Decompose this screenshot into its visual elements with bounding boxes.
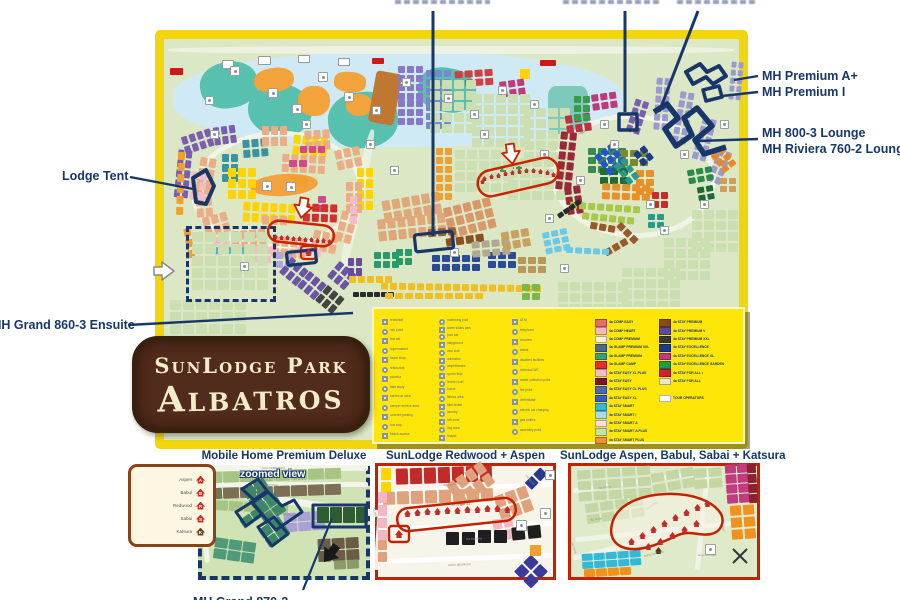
facility-icon: [292, 104, 302, 114]
pitch: [557, 161, 565, 170]
legend-facility-icon: [439, 373, 445, 379]
pitch: [594, 282, 604, 291]
legend-facility-item: telephone: [512, 329, 534, 335]
pitch: [462, 202, 472, 213]
legend-facility-text: playground: [447, 342, 463, 346]
pitch: [731, 61, 737, 67]
zoomed-view-label: zoomed view: [240, 468, 305, 480]
pitch-cluster: [300, 146, 327, 155]
pitch: [343, 507, 355, 523]
pitch: [309, 146, 316, 153]
pitch: [356, 507, 368, 523]
legend-swatch-text: 4a STAY SMART i: [609, 413, 636, 418]
pitch: [270, 203, 277, 212]
pitch: [229, 125, 236, 134]
pitch: [574, 114, 581, 121]
pitch: [309, 165, 316, 173]
legend-facility-icon: [382, 405, 388, 411]
pitch: [707, 128, 715, 136]
pitch: [558, 151, 566, 160]
pitch-cluster: [430, 80, 478, 135]
pitch: [619, 238, 629, 248]
pitch: [676, 271, 686, 280]
pitch: [622, 193, 630, 200]
legend-facility-item: camper service area: [382, 405, 419, 411]
map-shape: [258, 56, 271, 65]
pitch: [357, 168, 364, 177]
lodge-type-key: AspenABabulBRedwoodRSabaiSKatsuraK: [128, 464, 216, 547]
pitch: [222, 312, 233, 322]
legend-facility-item: take away: [382, 386, 404, 392]
pitch: [322, 129, 330, 138]
legend-swatch-text: 4a COMP PREMIUM: [609, 337, 640, 342]
pitch: [664, 87, 670, 94]
legend-swatch: [659, 369, 671, 377]
pitch: [566, 162, 574, 171]
pitch: [356, 258, 362, 266]
pitch: [731, 69, 737, 75]
pitch: [608, 567, 619, 576]
legend-accommodation-item: 4a STAY EXCELLENCE: [659, 344, 709, 352]
pitch: [271, 216, 278, 225]
legend-facility-text: bus stop: [390, 424, 402, 428]
pitch: [708, 467, 722, 477]
pitch: [454, 71, 462, 79]
pitch: [198, 192, 206, 201]
pitch: [397, 217, 406, 228]
legend-accommodation-item: 4a STAY FOR ALL: [659, 378, 701, 386]
pitch: [196, 324, 207, 334]
pitch: [629, 496, 643, 507]
pitch: [455, 236, 464, 245]
pitch: [508, 138, 518, 147]
pitch: [508, 105, 518, 114]
pitch: [317, 538, 331, 550]
pitch: [318, 146, 325, 153]
pitch: [366, 190, 373, 199]
pitch: [411, 491, 423, 504]
legend-facility-item: toilets: [512, 349, 528, 355]
legend-facility-item: disabled facilities: [512, 359, 544, 365]
legend-accommodation-item: 4a STAY EASY XL: [595, 395, 637, 403]
pitch: [222, 324, 233, 334]
pitch: [545, 247, 553, 254]
legend-facility-item: info point: [382, 329, 403, 335]
pitch: [657, 214, 664, 220]
pitch: [407, 109, 414, 116]
pitch: [426, 70, 433, 77]
pitch: [625, 124, 633, 133]
legend-accommodation-item: 4a GLAMP PREMIUM XXL: [595, 344, 649, 352]
pitch: [600, 500, 614, 511]
pitch: [522, 238, 531, 247]
pitch: [620, 567, 631, 576]
pitch: [276, 252, 283, 259]
pitch: [704, 232, 714, 241]
legend-facility-text: waste collection point: [520, 379, 550, 383]
pitch: [464, 70, 472, 78]
map-shape: [170, 68, 183, 75]
pitch: [675, 118, 682, 126]
pitch: [716, 221, 726, 230]
pitch: [687, 92, 694, 100]
pitch: [697, 176, 705, 183]
pitch: [408, 228, 417, 239]
pitch: [631, 107, 639, 116]
pitch: [725, 464, 737, 474]
pitch: [471, 284, 478, 291]
pitch: [435, 70, 442, 77]
pitch: [398, 118, 405, 125]
pitch: [455, 215, 465, 226]
pitch: [696, 168, 704, 175]
pitch: [336, 160, 345, 170]
pitch: [538, 266, 546, 273]
legend-facility-text: reception: [390, 319, 403, 323]
pitch: [743, 504, 755, 515]
legend-facility-item: mini club: [439, 350, 460, 356]
pitch: [330, 214, 337, 222]
pitch: [600, 93, 608, 101]
pitch: [656, 86, 662, 93]
highlight-dashed-area: [186, 226, 276, 302]
pitch: [462, 284, 469, 291]
legend-facility-icon: [439, 319, 445, 325]
lodge-key-tent-icon: B: [196, 489, 205, 497]
pitch-cluster: [348, 258, 364, 278]
pitch: [548, 119, 558, 128]
pitch: [496, 138, 506, 147]
legend-facility-text: pool bar: [447, 334, 459, 338]
pitch: [687, 169, 695, 176]
pitch: [427, 214, 436, 225]
pitch: [680, 467, 694, 478]
pitch: [574, 105, 581, 112]
pitch: [688, 177, 696, 184]
pitch: [699, 153, 707, 161]
pitch: [472, 138, 482, 147]
facility-icon: [450, 248, 459, 257]
legend-facility-text: bike rental: [447, 404, 462, 408]
map-shape: [298, 86, 330, 116]
pitch: [291, 485, 307, 497]
pitch: [597, 203, 604, 210]
pitch: [347, 559, 359, 569]
pitch: [694, 143, 702, 151]
legend-facility-item: beach access: [382, 433, 410, 439]
pitch: [330, 507, 342, 523]
legend-accommodation-item: 4a STAY EASY XL PLUS: [595, 369, 646, 377]
pitch: [479, 183, 489, 192]
pitch: [702, 145, 710, 153]
pitch: [345, 537, 359, 549]
lodge-key-row: AspenA: [131, 473, 205, 486]
pitch: [176, 196, 183, 204]
park-logo: SunLodge Park Albatros: [132, 336, 370, 433]
pitch: [430, 113, 440, 122]
legend-swatch: [659, 336, 671, 344]
legend-facility-text: bazar shop: [390, 357, 406, 361]
pitch-cluster: [436, 148, 454, 202]
pitch: [588, 166, 596, 173]
pitch: [454, 124, 464, 133]
lodge-key-row: BabulB: [131, 486, 205, 499]
logo-line1: SunLodge Park: [136, 353, 366, 378]
lodge-key-label: Aspen: [179, 477, 192, 482]
legend-swatch-text: 4a STAY SMART A PLUS: [609, 429, 647, 434]
pitch: [303, 213, 310, 221]
pitch: [248, 168, 256, 177]
pitch: [177, 174, 184, 182]
pitch: [716, 232, 726, 241]
legend-facility-text: supermarket: [390, 348, 408, 352]
legend-facility-icon: [439, 358, 445, 364]
facility-icon: [444, 94, 453, 103]
facility-icon: [576, 176, 585, 185]
pitch: [622, 279, 632, 288]
pitch: [455, 172, 465, 181]
legend-facility-icon: [512, 319, 518, 325]
legend-swatch: [659, 353, 671, 361]
pitch: [381, 283, 388, 290]
pitch: [308, 468, 324, 480]
pitch: [688, 271, 698, 280]
pitch: [228, 179, 236, 188]
legend-swatch-text: 4a STAY EXCELLENCE XL: [673, 354, 714, 359]
legend-facility-text: camper service area: [390, 405, 419, 409]
pitch: [693, 468, 707, 478]
pitch: [252, 202, 259, 211]
pitch: [300, 146, 307, 153]
legend-facility-text: amphitheatre: [447, 365, 466, 369]
pitch: [209, 312, 220, 322]
pitch: [633, 127, 641, 136]
pitch: [405, 258, 412, 265]
pitch: [664, 78, 670, 85]
pitch: [593, 553, 604, 561]
pitch: [532, 284, 540, 291]
pitch: [418, 227, 427, 238]
legend-accommodation-item: 4a COMP EASY: [595, 319, 633, 327]
pitch-cluster: [693, 467, 724, 491]
pitch: [528, 266, 536, 273]
pitch: [676, 249, 686, 258]
pitch: [600, 214, 608, 222]
legend-swatch: [595, 361, 607, 369]
facility-icon: [560, 264, 569, 273]
pitch: [479, 150, 489, 159]
pitch: [462, 255, 470, 262]
pitch: [430, 80, 440, 89]
pitch: [496, 105, 506, 114]
pitch: [654, 113, 660, 120]
pitch-cluster: [303, 203, 340, 224]
pitch: [704, 221, 714, 230]
legend-facility-text: beach access: [390, 433, 410, 437]
pitch: [308, 484, 324, 496]
pitch: [623, 478, 637, 488]
pitch: [235, 324, 246, 334]
legend-swatch: [595, 437, 607, 445]
legend-facility-icon: [439, 411, 445, 417]
pitch: [407, 66, 414, 73]
pitch: [210, 214, 219, 225]
legend-facility-icon: [382, 348, 388, 354]
pitch: [416, 100, 423, 107]
pitch: [692, 210, 702, 219]
pitch: [321, 214, 328, 222]
pitch: [520, 191, 530, 200]
pitch: [231, 154, 238, 162]
pitch: [313, 229, 322, 239]
inset3-title: SunLodge Aspen, Babul, Sabai + Katsura: [560, 450, 768, 462]
pitch: [432, 255, 440, 262]
pitch: [729, 186, 736, 192]
pitch: [407, 216, 416, 227]
pitch: [731, 529, 743, 540]
pitch-cluster: [170, 300, 248, 336]
pitch: [646, 268, 656, 277]
pitch-cluster: [574, 96, 592, 123]
legend-facility-text: toilets: [520, 349, 528, 353]
pitch: [430, 102, 440, 111]
legend-facility-text: info point: [390, 329, 403, 333]
pitch: [467, 161, 477, 170]
pitch: [378, 552, 387, 562]
pitch: [454, 113, 464, 122]
pitch: [508, 116, 518, 125]
legend-facility-item: gas bottles: [512, 419, 535, 425]
pitch: [425, 490, 437, 503]
pitch: [190, 181, 198, 190]
pitch: [596, 568, 607, 577]
pitch: [417, 215, 426, 226]
pitch: [354, 157, 363, 167]
legend-facility-item: animation: [439, 358, 461, 364]
pitch: [202, 216, 211, 227]
facility-icon: [498, 86, 507, 95]
legend-accommodation-item: 4a STAY EXCELLENCE GARDEN: [659, 361, 724, 369]
pitch: [592, 103, 600, 111]
pitch: [436, 148, 443, 155]
pitch: [536, 119, 546, 128]
label-bottom-cut: MH Grand 870-2: [193, 595, 288, 600]
pitch: [396, 258, 403, 265]
pitch: [252, 213, 259, 222]
legend-facility-icon: [382, 376, 388, 382]
legend-facility-icon: [382, 395, 388, 401]
pitch: [559, 141, 567, 150]
pitch: [706, 185, 714, 192]
pitch: [262, 126, 269, 135]
pitch: [188, 133, 196, 142]
pitch: [585, 502, 599, 513]
pitch: [219, 211, 228, 222]
pitch-cluster: [334, 559, 360, 570]
pitch: [467, 223, 477, 234]
pitch: [352, 146, 361, 156]
pitch: [466, 80, 476, 89]
pitch: [328, 244, 337, 254]
pitch: [485, 78, 493, 86]
pitch: [729, 178, 736, 184]
pitch: [700, 260, 710, 269]
pitch: [416, 109, 423, 116]
pitch: [567, 152, 575, 161]
pitch: [512, 239, 521, 248]
pitch: [602, 192, 610, 199]
pitch: [705, 166, 713, 173]
pitch: [458, 226, 468, 237]
pitch: [548, 108, 558, 117]
facility-icon: [700, 200, 709, 209]
pitch: [532, 191, 542, 200]
pitch: [583, 96, 590, 103]
pitch: [530, 545, 541, 556]
pitch: [421, 193, 431, 204]
pitch: [672, 135, 679, 143]
pitch: [583, 105, 590, 112]
legend-swatch-text: 4a STAY EASY: [609, 379, 632, 384]
legend-swatch: [595, 327, 607, 335]
legend-accommodation-item: 4a STAY PREMIUM XXL: [659, 336, 710, 344]
pitch: [282, 164, 289, 172]
street-label: largo dei fiumi: [698, 553, 717, 557]
pitch: [390, 283, 397, 290]
pitch: [366, 168, 373, 177]
pitch: [442, 255, 450, 262]
pitch: [445, 293, 453, 299]
pitch: [318, 550, 332, 562]
pitch: [227, 550, 241, 562]
pitch: [663, 96, 669, 103]
pitch: [729, 85, 735, 91]
pitch: [377, 219, 386, 230]
pitch-cluster: [730, 504, 758, 542]
pitch-cluster: [530, 545, 543, 558]
pitch: [430, 91, 440, 100]
legend-facility-text: covered parking: [390, 414, 413, 418]
cutoff-label-sliver-2: [563, 0, 660, 4]
pitch: [395, 293, 403, 299]
map-shape: [540, 60, 556, 66]
pitch: [622, 467, 636, 477]
pitch: [350, 196, 357, 204]
label-lodge-tent: Lodge Tent: [62, 169, 128, 183]
pitch: [445, 238, 454, 247]
pitch: [407, 118, 414, 125]
pitch: [214, 537, 228, 549]
pitch: [728, 221, 738, 230]
pitch: [730, 77, 736, 83]
pitch: [664, 238, 674, 247]
pitch: [508, 127, 518, 136]
pitch: [472, 94, 482, 103]
pitch: [594, 293, 604, 302]
pitch: [213, 548, 227, 560]
pitch: [646, 179, 654, 186]
legend-facility-icon: [512, 369, 518, 375]
legend-swatch-text: 4a GLAMP CAMP: [609, 362, 636, 367]
pitch: [522, 293, 530, 300]
legend-swatch: [595, 336, 607, 344]
pitch: [445, 184, 452, 191]
pitch: [479, 161, 489, 170]
pitch: [241, 552, 255, 564]
facility-icon: [470, 110, 479, 119]
pitch: [388, 230, 397, 241]
pitch: [170, 312, 181, 322]
